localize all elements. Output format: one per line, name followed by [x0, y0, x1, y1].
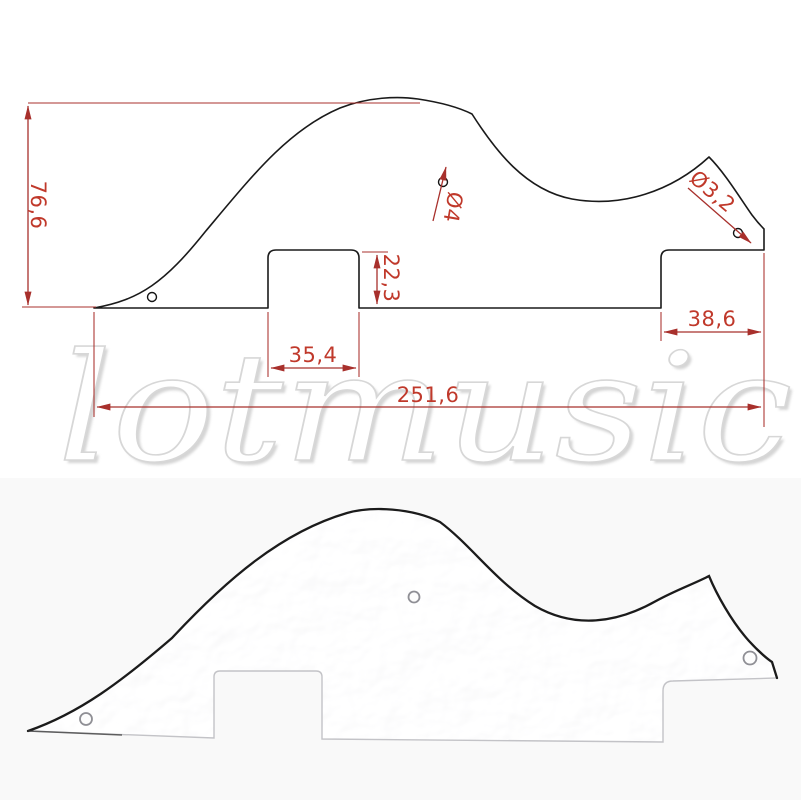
photo-corner-screw-hole: [744, 652, 757, 665]
dim-overall-height-label: 76,6: [26, 181, 50, 230]
product-listing-image: lotmusic lotmusic 76,6 22,3 35,4: [0, 0, 801, 800]
dim-overall-length-label: 251,6: [397, 383, 460, 407]
dim-step-width-label: 38,6: [688, 307, 737, 331]
photo-center-screw-hole: [409, 592, 420, 603]
photo-tip-screw-hole: [80, 713, 92, 725]
dim-notch-depth-label: 22,3: [379, 254, 403, 303]
corner-screw-hole-drawing: [734, 229, 743, 238]
watermark: lotmusic lotmusic: [58, 322, 796, 499]
watermark-text: lotmusic: [58, 322, 793, 496]
pickguard-spec-graphic: lotmusic lotmusic 76,6 22,3 35,4: [0, 0, 801, 800]
tip-screw-hole-drawing: [148, 293, 157, 302]
dim-notch-width-label: 35,4: [289, 343, 338, 367]
